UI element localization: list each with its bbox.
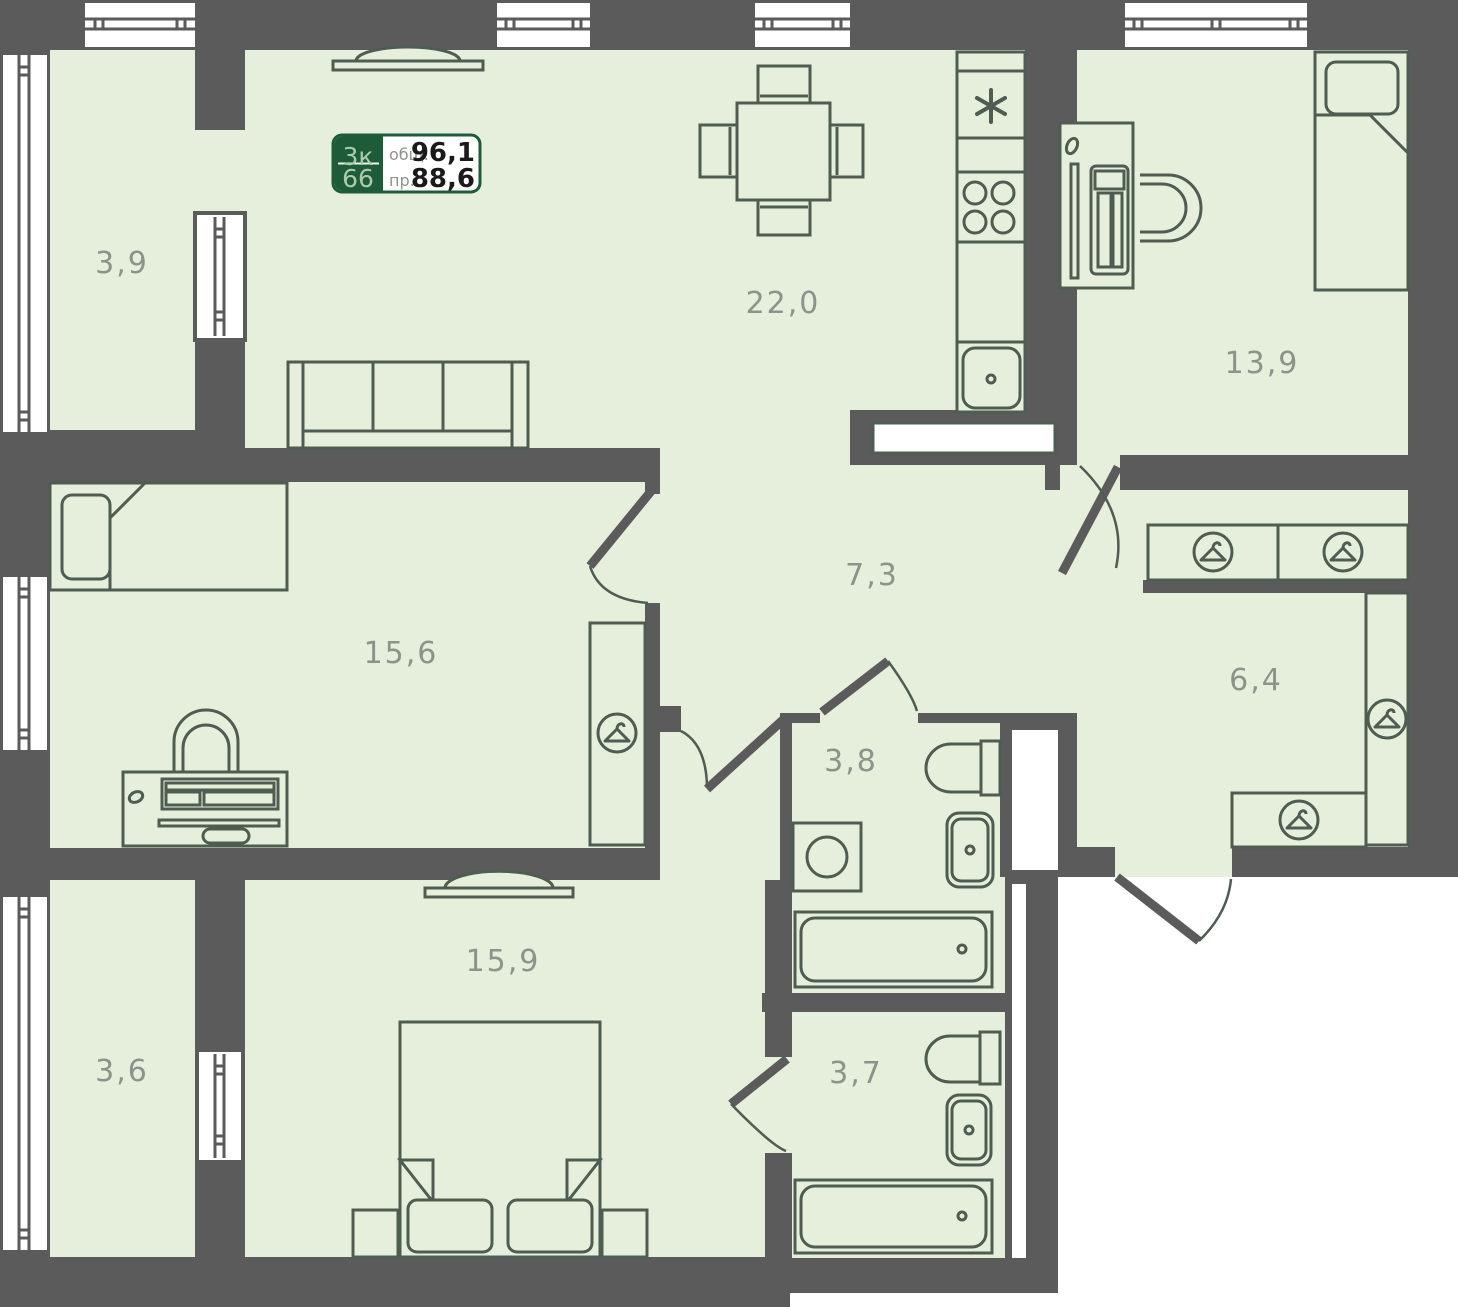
wall-segment — [645, 706, 681, 732]
bathtub-icon — [795, 1180, 992, 1253]
window — [755, 3, 850, 47]
dining-table-icon — [737, 103, 830, 200]
room-label-bedroom-left: 15,6 — [364, 636, 439, 671]
room-label-bathroom-center: 3,8 — [824, 744, 878, 779]
room-label-balcony-bottom: 3,6 — [95, 1054, 149, 1089]
wall-segment — [243, 448, 660, 482]
chair-icon — [758, 66, 810, 103]
room-label-hall-center: 7,3 — [845, 558, 899, 593]
toilet-icon — [926, 741, 1000, 795]
wall-segment — [780, 722, 792, 880]
nightstand — [353, 1210, 398, 1257]
wall-segment — [195, 880, 245, 1050]
window — [497, 3, 590, 47]
wardrobe — [1366, 593, 1408, 845]
wall-segment — [1408, 0, 1458, 877]
room-label-bathroom-bottom: 3,7 — [829, 1056, 883, 1091]
wardrobe — [1232, 793, 1366, 847]
desk — [1060, 123, 1133, 288]
toilet-icon — [926, 1032, 1000, 1084]
floor-plan-page: 3,9 22,0 13,9 15,6 7,3 6,4 3,8 15,9 3,6 … — [0, 0, 1458, 1307]
bed-icon — [50, 483, 287, 590]
floor-plan: 3,9 22,0 13,9 15,6 7,3 6,4 3,8 15,9 3,6 … — [0, 0, 1458, 1307]
wall-segment — [1143, 580, 1408, 593]
bar-counter — [873, 423, 1055, 453]
hanger-icon — [1324, 533, 1362, 571]
hanger-icon — [1280, 801, 1318, 839]
sofa-icon — [288, 362, 528, 448]
sink-icon — [947, 813, 993, 887]
nightstand — [602, 1210, 647, 1257]
room-label-bedroom-bottom: 15,9 — [466, 944, 541, 979]
badge-reduced-value: 88,6 — [411, 164, 475, 194]
wall-segment — [195, 1162, 245, 1257]
window — [3, 55, 47, 432]
wardrobe — [590, 623, 645, 845]
wall-segment — [762, 993, 1008, 1012]
wall-segment — [765, 880, 792, 1057]
wall-segment — [195, 50, 245, 130]
wall-segment — [1120, 455, 1458, 490]
wall-segment — [0, 430, 245, 482]
wall-segment — [50, 848, 660, 880]
wall-segment — [1232, 847, 1458, 877]
room-label-bedroom-right: 13,9 — [1225, 346, 1300, 381]
room-label-balcony-top: 3,9 — [95, 246, 149, 281]
wall-segment — [1045, 455, 1060, 490]
bathtub-icon — [795, 912, 992, 987]
window — [197, 1050, 243, 1162]
chair-icon — [830, 125, 863, 177]
window — [1125, 3, 1307, 47]
window — [195, 213, 245, 340]
sink-icon — [947, 1095, 991, 1165]
window — [85, 3, 195, 47]
chair-icon — [700, 125, 737, 177]
windows-left — [3, 55, 47, 1250]
wardrobe — [1278, 525, 1408, 580]
hanger-icon — [1368, 700, 1406, 738]
entrance-door — [1117, 877, 1231, 941]
desk — [123, 772, 287, 846]
washing-machine-icon — [793, 823, 861, 891]
wall-segment — [0, 1257, 790, 1307]
desk-chair-icon — [174, 710, 238, 772]
desk-chair-icon — [1140, 175, 1201, 241]
wardrobe — [1148, 525, 1278, 580]
room-label-living-kitchen: 22,0 — [746, 286, 821, 321]
hanger-icon — [1194, 533, 1232, 571]
double-bed-icon — [400, 1022, 600, 1257]
window — [3, 897, 47, 1250]
room-label-hall-right: 6,4 — [1229, 663, 1283, 698]
window — [3, 577, 47, 750]
hanger-icon — [598, 714, 636, 752]
area-badge: 3к 66 общ. 96,1 пр. 88,6 — [333, 135, 480, 194]
wall-segment — [918, 713, 1008, 723]
bed-icon — [1315, 52, 1408, 290]
badge-unit-number: 66 — [342, 164, 374, 193]
chair-icon — [758, 200, 810, 235]
apartment-floor — [50, 50, 1408, 1293]
